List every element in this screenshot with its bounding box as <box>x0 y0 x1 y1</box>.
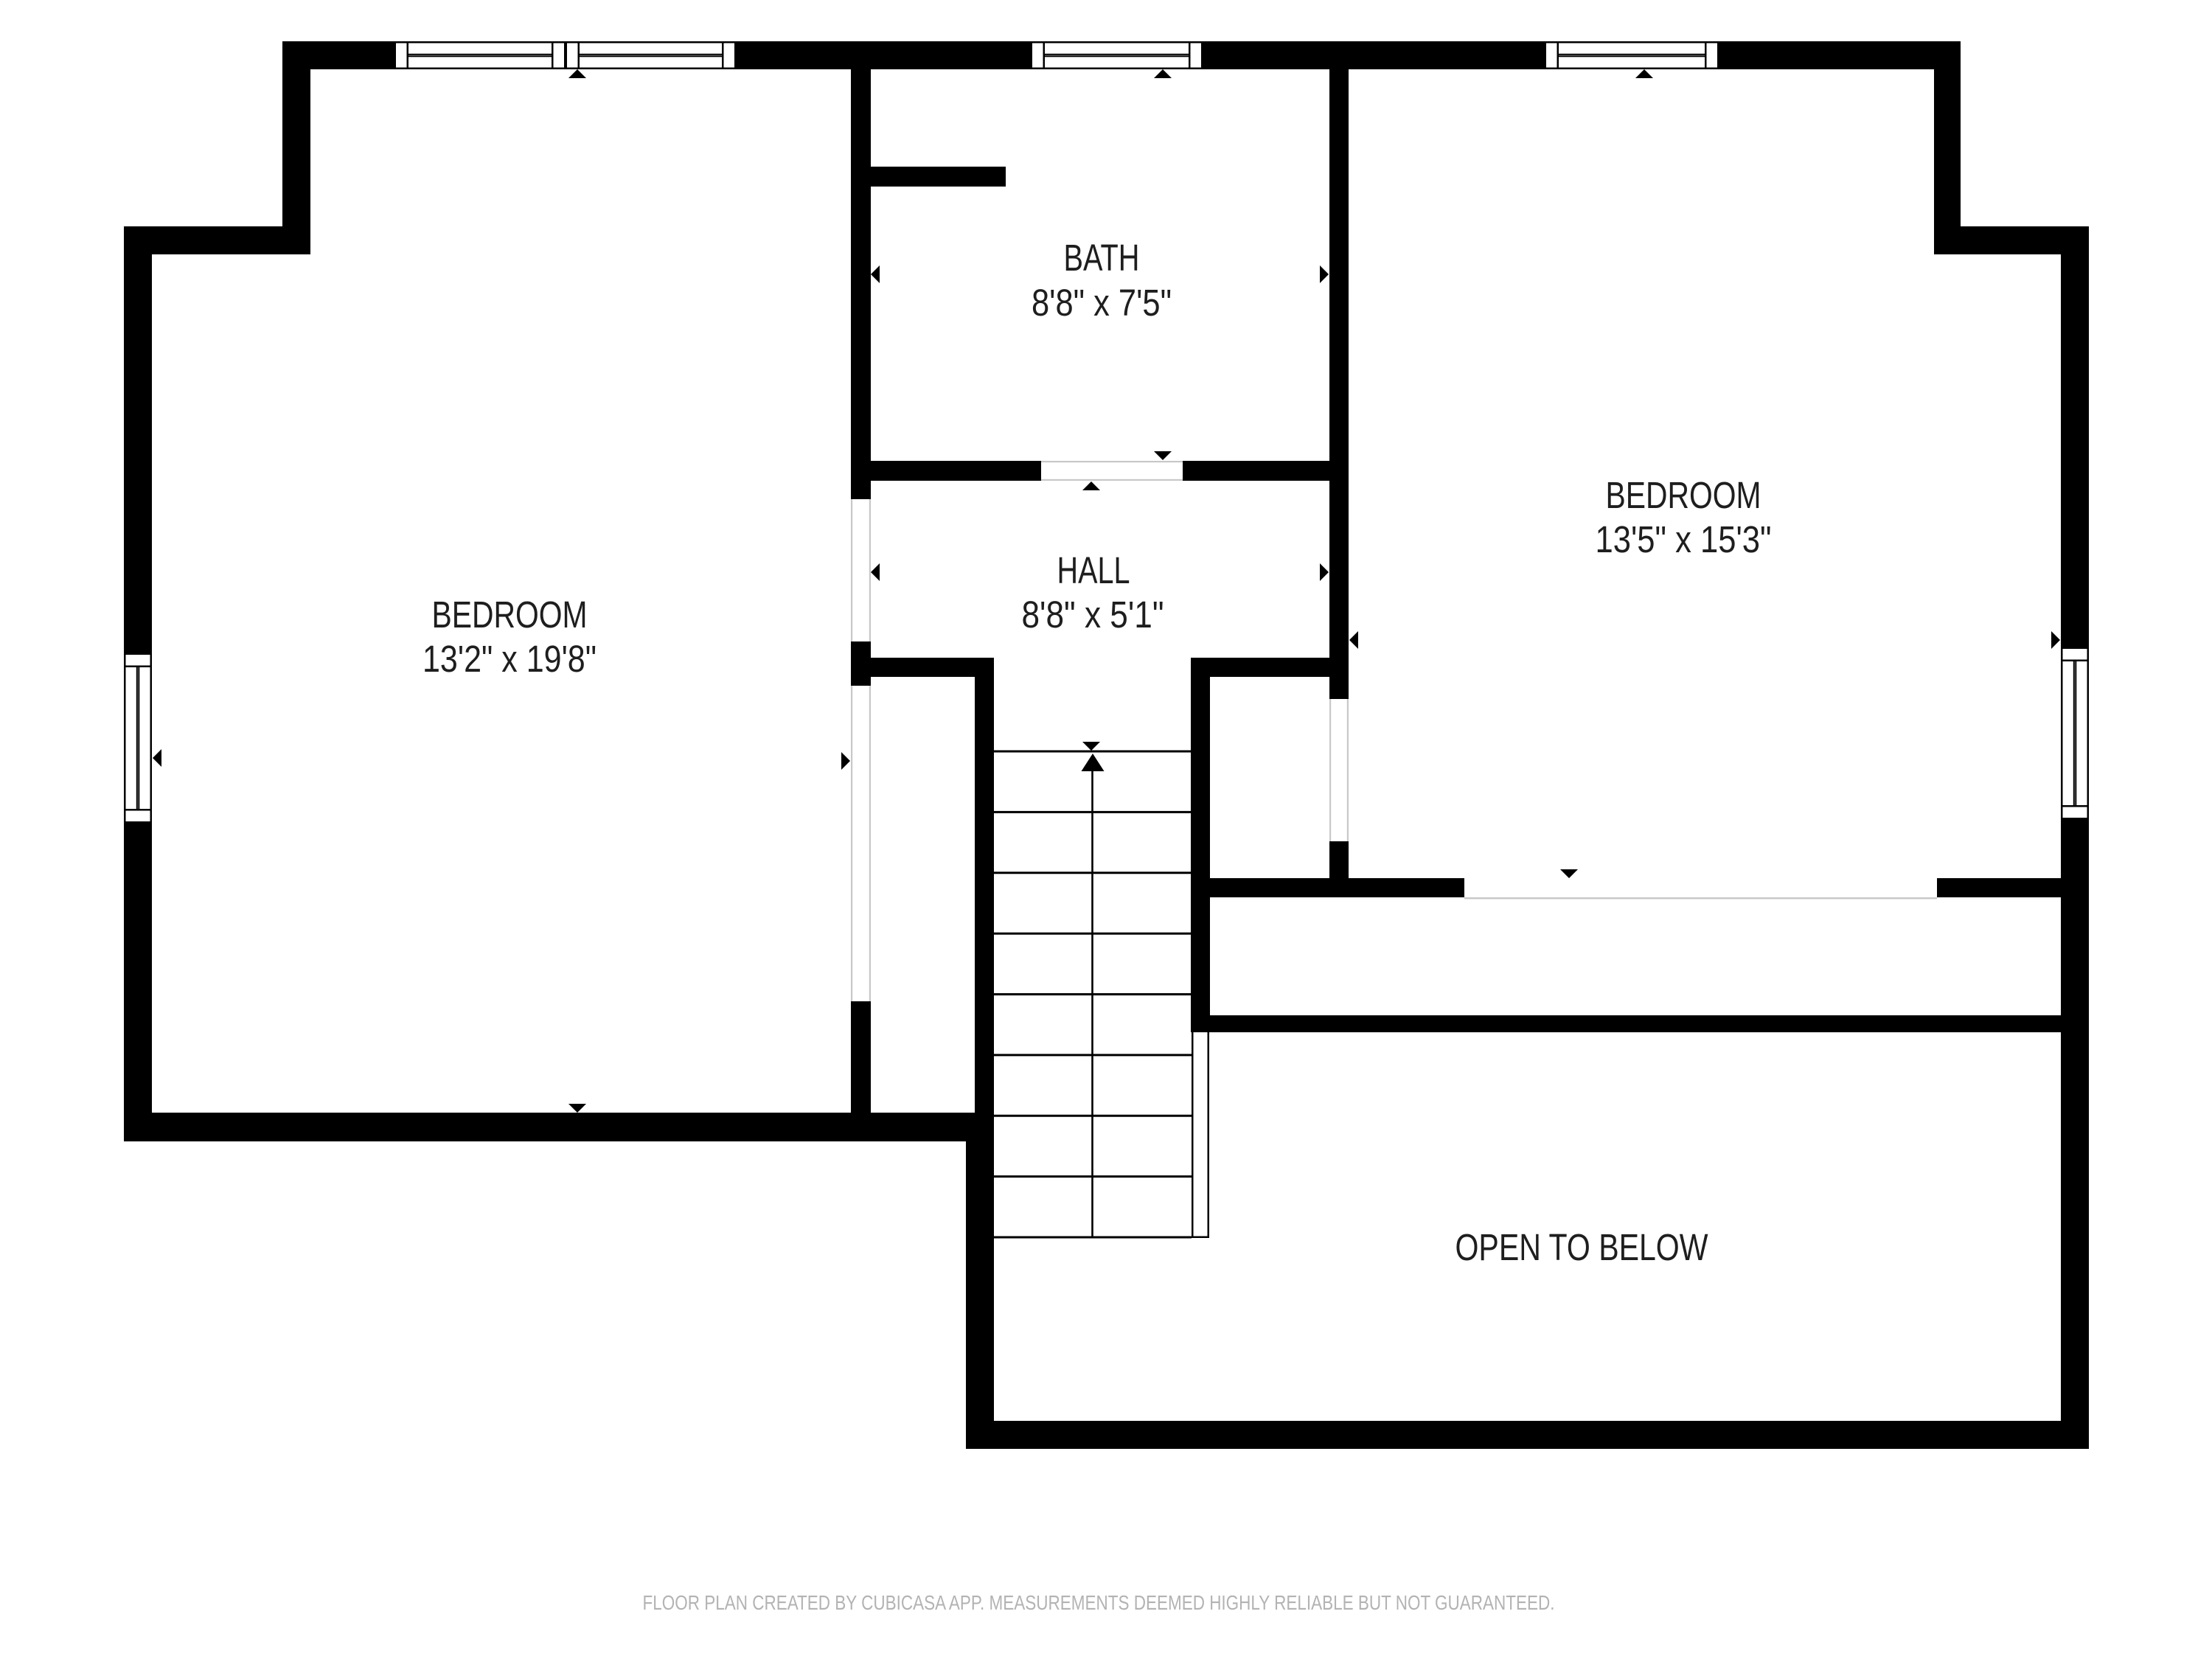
svg-text:FLOOR PLAN CREATED BY CUBICASA: FLOOR PLAN CREATED BY CUBICASA APP. MEAS… <box>643 1591 1555 1614</box>
svg-text:8'8" x 5'1": 8'8" x 5'1" <box>1022 594 1164 636</box>
svg-text:BATH: BATH <box>1064 237 1140 279</box>
svg-text:BEDROOM: BEDROOM <box>1606 474 1761 516</box>
svg-text:BEDROOM: BEDROOM <box>432 594 588 636</box>
svg-text:HALL: HALL <box>1057 549 1130 591</box>
svg-text:OPEN TO BELOW: OPEN TO BELOW <box>1455 1226 1708 1268</box>
svg-text:8'8" x 7'5": 8'8" x 7'5" <box>1032 282 1172 324</box>
svg-text:13'2" x 19'8": 13'2" x 19'8" <box>422 638 597 680</box>
svg-text:13'5" x 15'3": 13'5" x 15'3" <box>1596 518 1772 560</box>
